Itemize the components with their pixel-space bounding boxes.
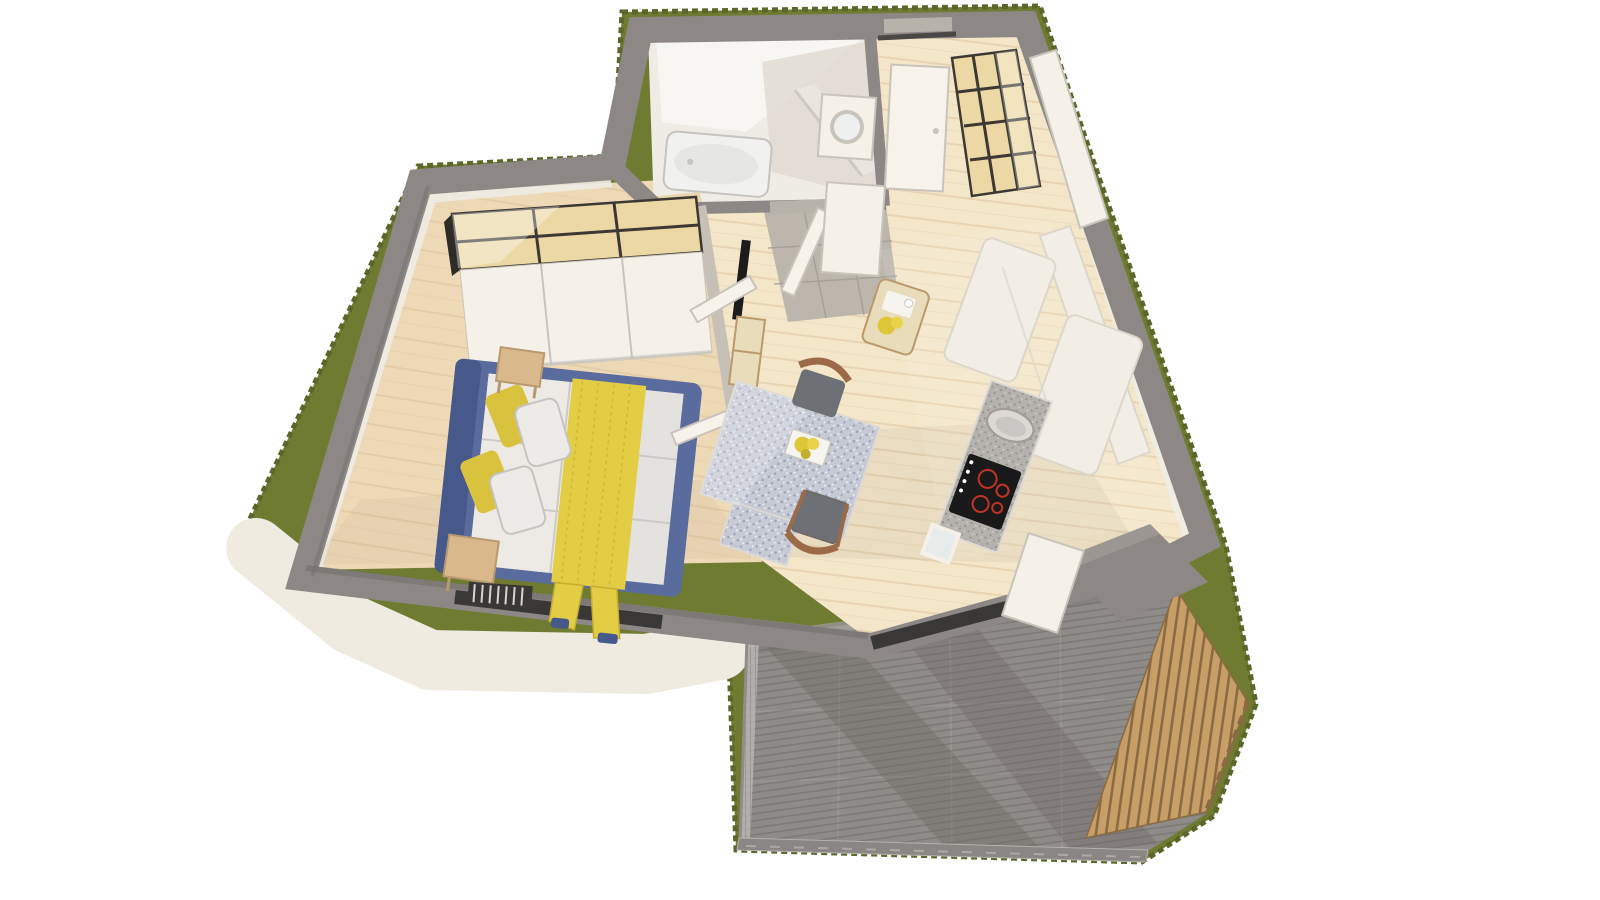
floor-plan-svg <box>0 0 1600 900</box>
slipper-2 <box>597 632 618 644</box>
wardrobe <box>444 197 712 370</box>
bathtub <box>663 131 773 198</box>
bedroom <box>428 197 712 650</box>
entrance-door-gap <box>884 24 952 26</box>
radiator <box>467 582 532 608</box>
entrance-door <box>885 65 949 192</box>
wardrobe-doors <box>460 252 712 370</box>
entry-hall <box>818 94 885 276</box>
washing-machine <box>818 94 876 160</box>
floor-plan-render <box>0 0 1600 900</box>
hall-cabinet <box>821 182 885 276</box>
slipper-1 <box>551 617 570 629</box>
